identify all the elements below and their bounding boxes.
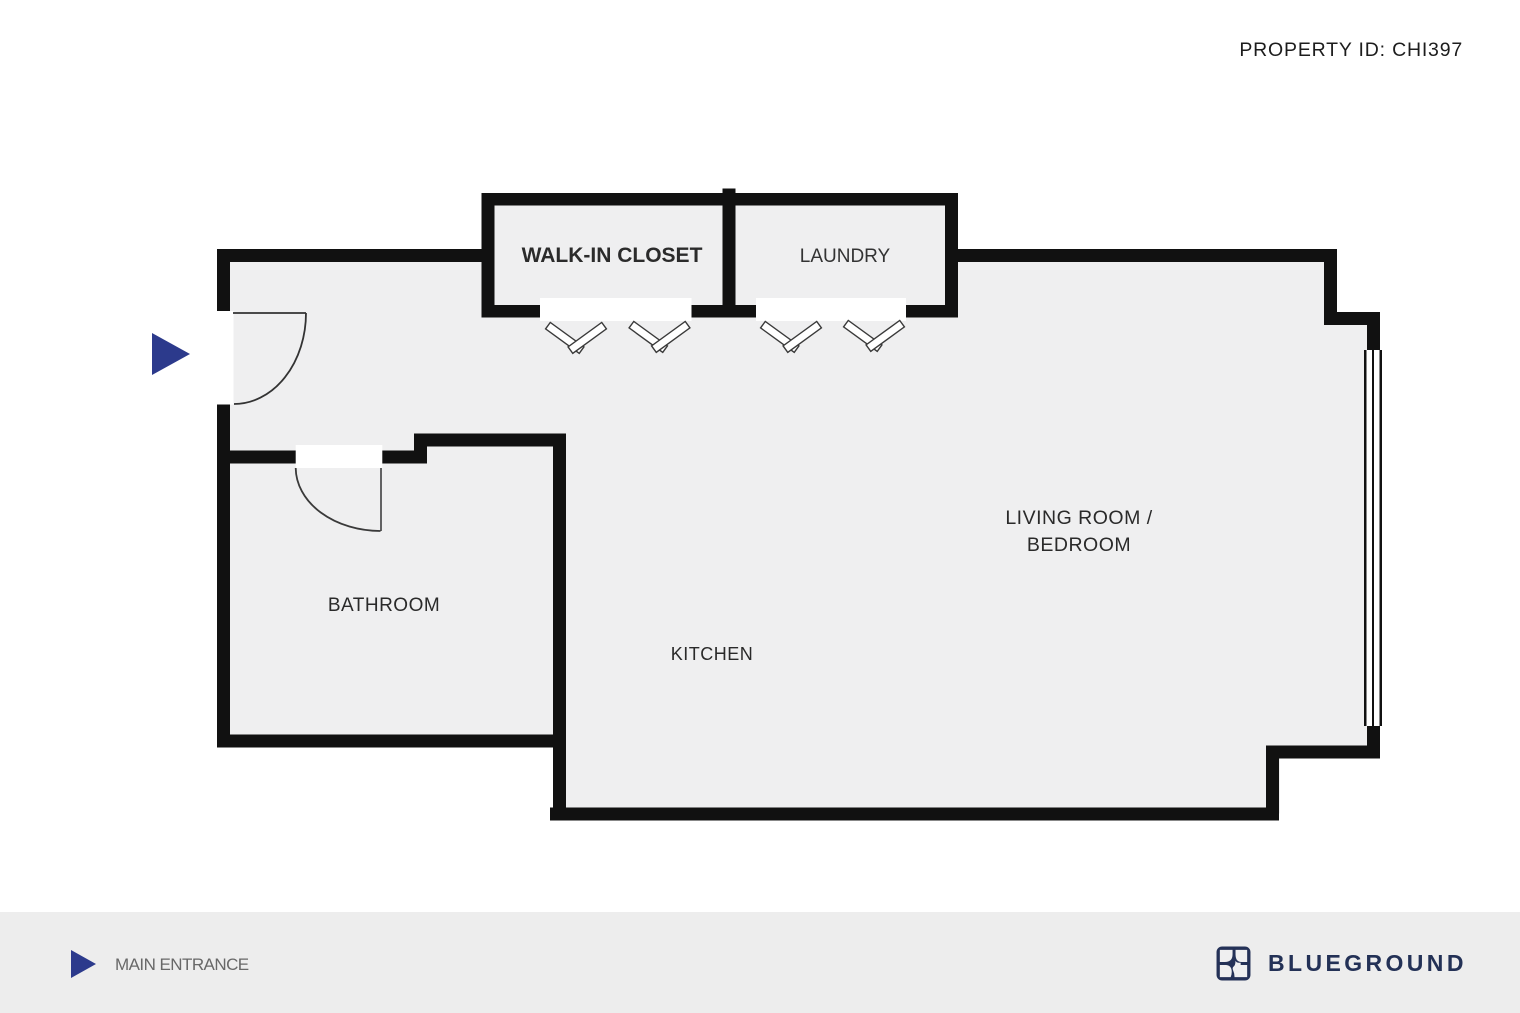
svg-text:KITCHEN: KITCHEN: [671, 644, 754, 664]
svg-text:LAUNDRY: LAUNDRY: [800, 246, 891, 267]
svg-text:BATHROOM: BATHROOM: [328, 595, 440, 616]
svg-text:WALK-IN CLOSET: WALK-IN CLOSET: [522, 244, 703, 267]
svg-text:BEDROOM: BEDROOM: [1027, 534, 1131, 556]
svg-text:LIVING ROOM /: LIVING ROOM /: [1005, 507, 1152, 529]
